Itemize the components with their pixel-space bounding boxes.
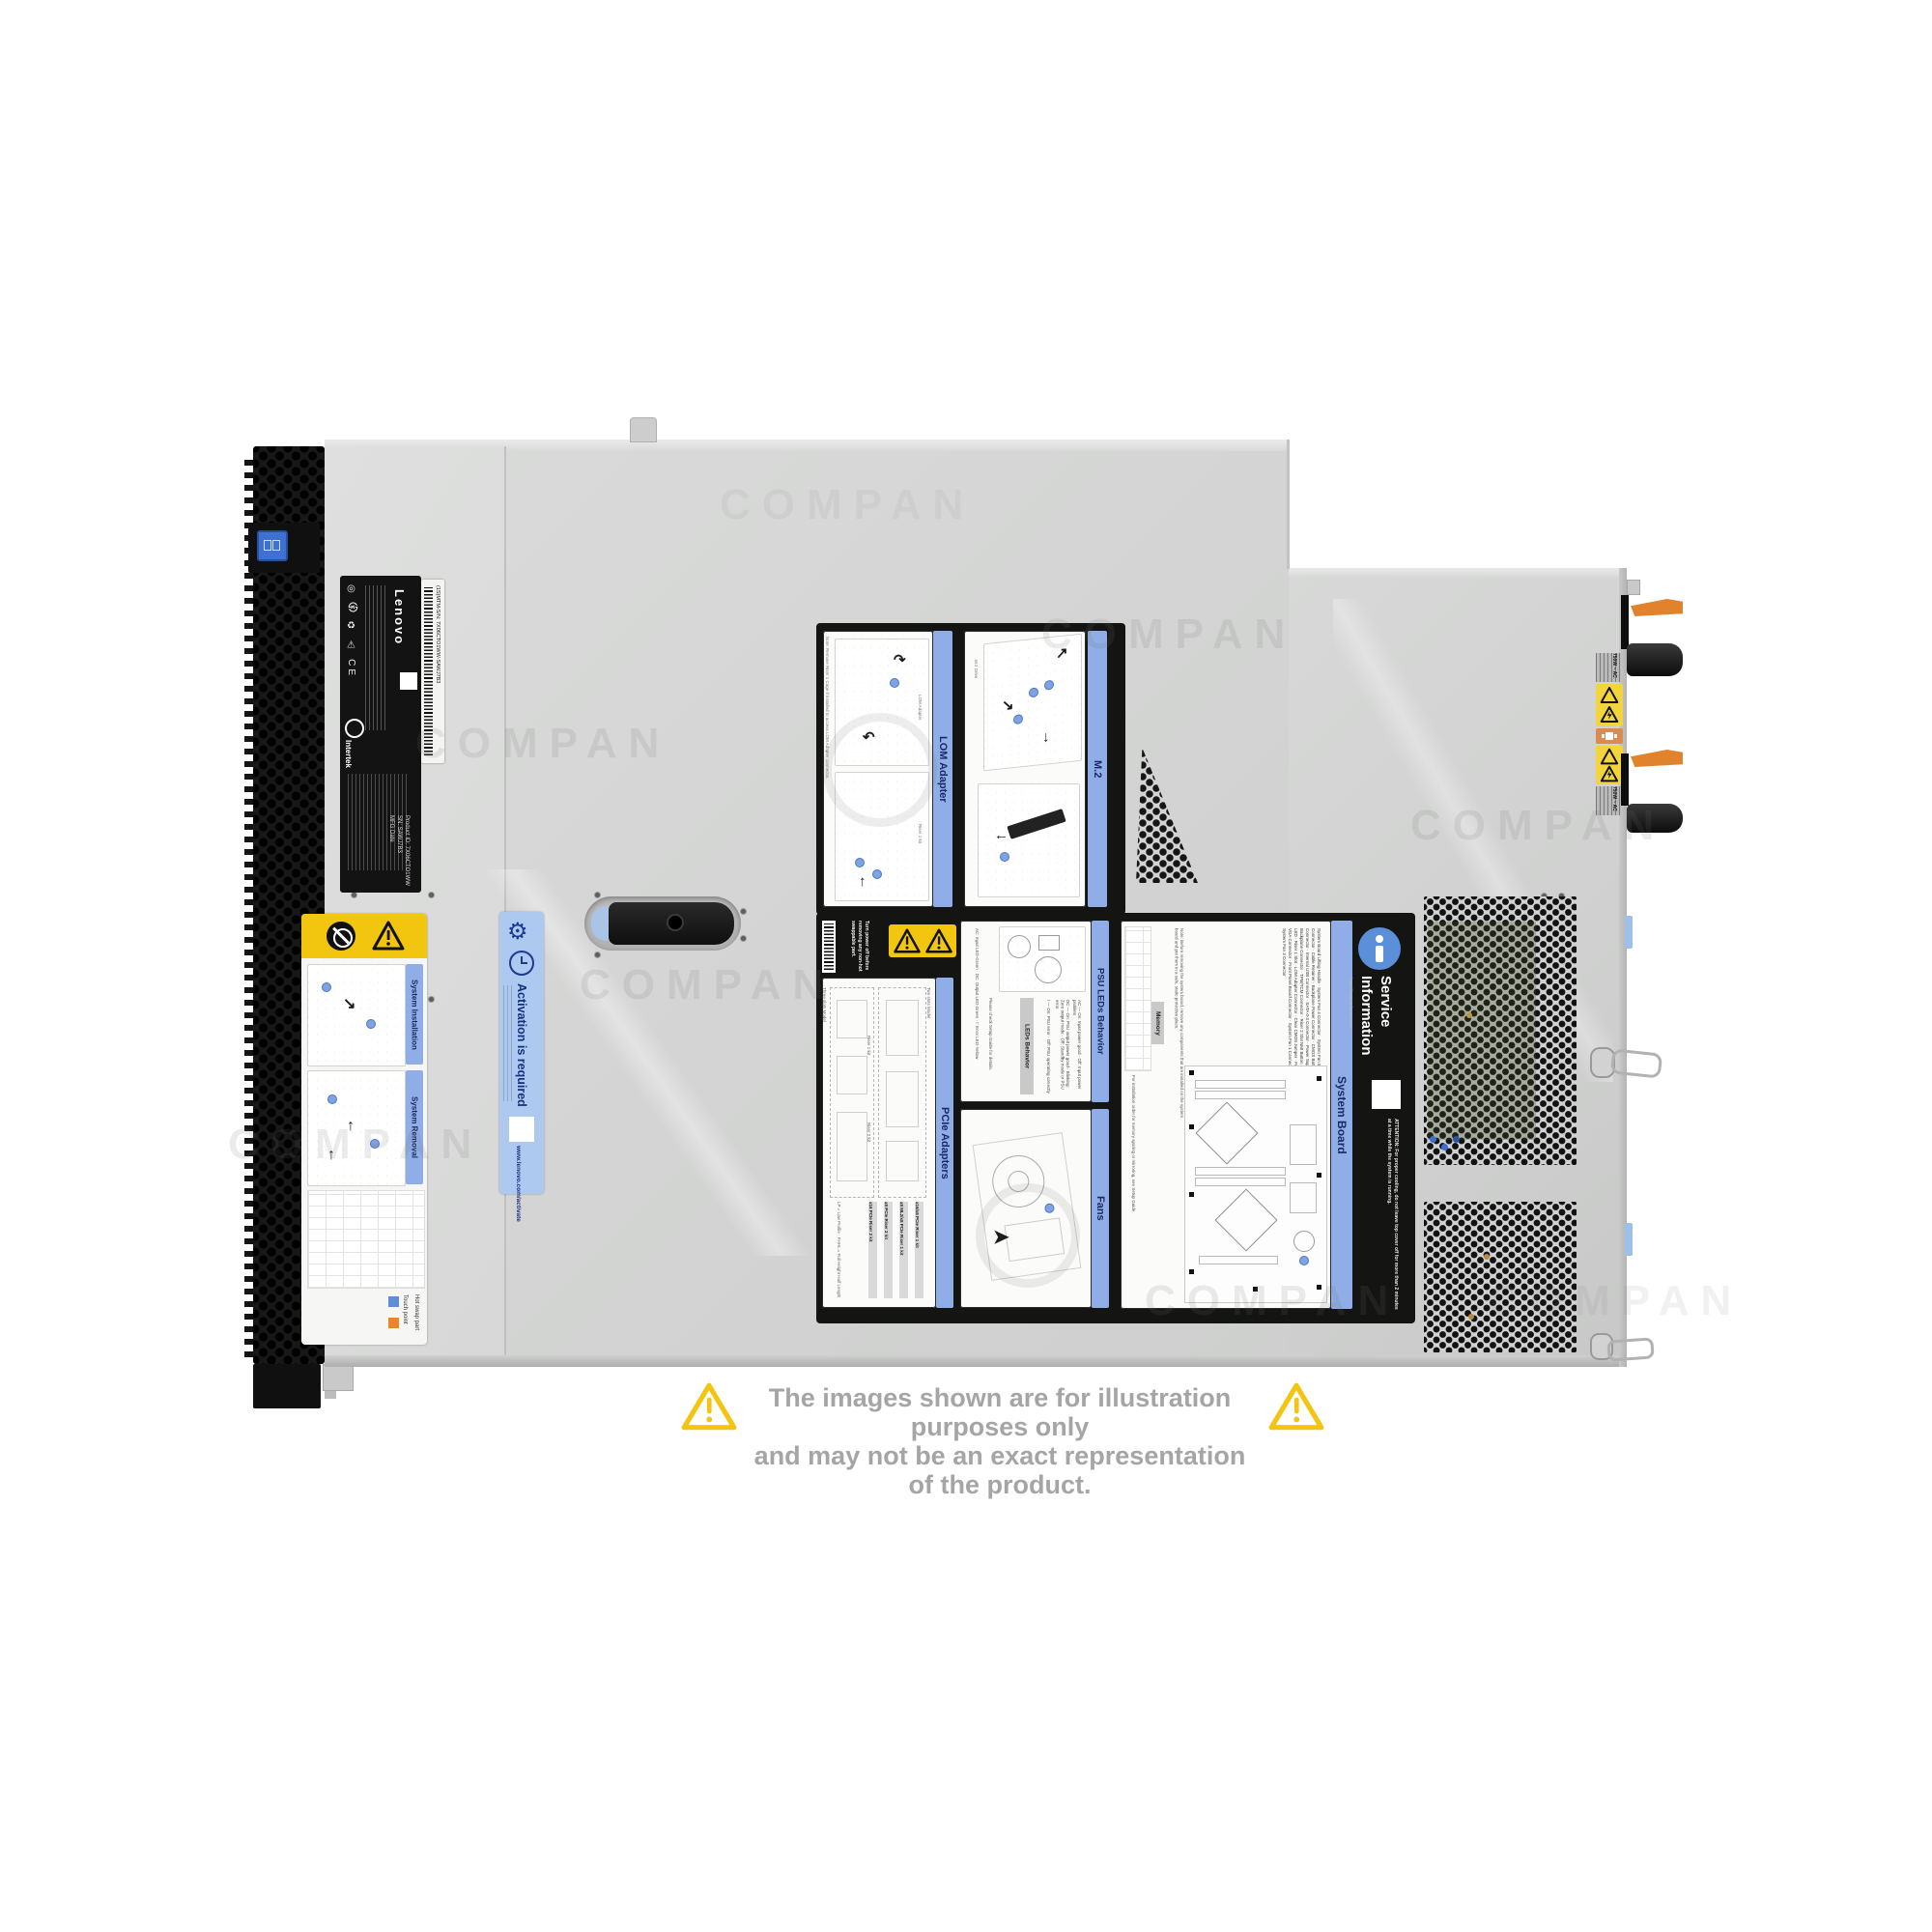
psu-row-ac: AC — On: Input power good · Off: Input p… — [1072, 1000, 1082, 1096]
activation-qr-icon — [509, 1117, 534, 1142]
fans-panel: ➤ — [960, 1109, 1092, 1308]
pcie-kit-bar: x16/x8 PCIe Riser 1 kit — [915, 1202, 923, 1298]
asset-label-mfg: MFG Date — [388, 815, 394, 842]
asset-label-certs: ◎ ㉿ ♻ ⚠ CE — [344, 583, 358, 678]
gear-icon: ⚙ — [507, 918, 528, 946]
m2-panel: Connector M.2 Drive Retainer ↗ ↘ ↓ ← — [964, 631, 1086, 907]
electric-hazard-icon — [1600, 705, 1619, 724]
asset-label-fineprint — [365, 585, 388, 730]
install-label-warning-strip — [301, 914, 427, 958]
pcie-kit-bar: x8 ML2/x8 PCIe Riser 1 kit — [899, 1202, 908, 1298]
cover-edge-top-rear — [1289, 568, 1625, 579]
mtm-barcode — [424, 587, 433, 755]
memory-table — [1124, 926, 1151, 1071]
psu-warning-label — [1596, 746, 1623, 784]
lom-diagram-1: ↷ ↶ — [835, 639, 929, 766]
pcie-kit2: x8 ML2/x8 PCIe Riser 1 kit — [899, 1202, 904, 1256]
psu1-release-tab[interactable] — [1631, 599, 1683, 616]
mtm-barcode-label: (1S)MTM-S/N: 7X06CTO1WW-SAWJ7B3 — [421, 580, 444, 763]
leds-behavior-bar: LEDs Behavior — [1020, 998, 1034, 1094]
fans-title: Fans — [1094, 1196, 1106, 1221]
rail-nub-top — [1627, 580, 1640, 595]
top-tab — [630, 417, 657, 442]
install-section1-header: System Installation — [406, 964, 423, 1065]
touch-point-swatch — [388, 1296, 399, 1307]
psu2-rating-label: 750W ~ AC — [1596, 786, 1621, 815]
install-diagram-1: ↘ — [307, 964, 406, 1066]
memory-title: Memory — [1154, 1011, 1161, 1036]
board-note: Note: Before removing the system board, … — [1171, 928, 1184, 1122]
memory-note: For installation order for memory sparin… — [1124, 1075, 1136, 1259]
m2-header: M.2 — [1088, 631, 1107, 907]
rear-vent-upper — [1424, 896, 1577, 1165]
screw — [741, 909, 746, 914]
psu1-rating: 750W ~ AC — [1611, 653, 1617, 678]
screw — [595, 952, 600, 957]
psu-leds-note: Please check Setup Guide for details. — [983, 998, 993, 1094]
psu2-rating: 750W ~ AC — [1611, 786, 1617, 811]
m2-diagram-2: ← — [978, 783, 1080, 897]
mtm-barcode-text: (1S)MTM-S/N: 7X06CTO1WW-SAWJ7B3 — [435, 585, 440, 683]
pcb-tint — [1428, 922, 1536, 1140]
rack-ear-bottom — [253, 1364, 321, 1408]
riser-sketch-2 — [878, 987, 926, 1198]
disclaimer-line2: and may not be an exact representation o… — [749, 1441, 1251, 1499]
system-board-title: System Board — [1335, 1076, 1349, 1154]
service-warning-text: Turn power off before removing any non-h… — [842, 921, 869, 980]
activation-url: www.lenovo.com/activate — [515, 1146, 522, 1222]
warning-triangle-icon — [893, 927, 922, 954]
psu-diagram — [999, 926, 1086, 992]
board-diagram — [1184, 1065, 1327, 1303]
install-label: ↘ System Installation ↑ ↑ System Removal… — [301, 914, 427, 1345]
latch-wire-handle[interactable] — [1606, 1337, 1654, 1361]
asset-label-qr-icon — [400, 672, 417, 690]
screw — [429, 893, 434, 897]
pcie-panel: Two slots Model Three slots Model Riser … — [822, 978, 936, 1308]
psu-leds-title: PSU LEDs Behavior — [1095, 968, 1106, 1055]
system-board-panel: Memory For installation order for memory… — [1121, 921, 1331, 1309]
install-section2-header: System Removal — [406, 1070, 423, 1184]
psu-leds-legend: AC: Input LED-Green · DC: Output LED-Gre… — [966, 928, 980, 1093]
screw — [741, 936, 746, 941]
service-info-icon — [1358, 927, 1401, 970]
lom-title: LOM Adapter — [937, 736, 949, 803]
install-led-table — [307, 1190, 425, 1289]
memory-bar: Memory — [1151, 1002, 1164, 1044]
screw — [352, 893, 356, 897]
activation-title: Activation is required — [515, 983, 528, 1107]
asset-label-intertek: Intertek — [344, 740, 353, 768]
lom-caption1: LOM Adapter — [918, 695, 923, 721]
warning-triangle-icon — [371, 920, 406, 952]
intertek-logo-icon — [345, 719, 364, 738]
pcie-model1: Two slots Model — [926, 987, 931, 1018]
riser-sketch-1 — [830, 987, 874, 1198]
psu1-slot — [1621, 595, 1629, 649]
service-barcode — [822, 921, 836, 973]
disclaimer-line1: The images shown are for illustration pu… — [749, 1383, 1251, 1441]
psu-leds-panel: AC: Input LED-Green · DC: Output LED-Gre… — [960, 921, 1092, 1102]
psu-row-err: ! — On: PSU error · Off: PSU operating c… — [1039, 1000, 1051, 1096]
psu2-slot — [1621, 753, 1629, 806]
m2-cap2: M.2 Drive — [974, 660, 979, 678]
service-info-url: https://support.lenovo.com — [1349, 978, 1353, 1029]
psu1-rating-label: 750W ~ AC — [1596, 653, 1621, 682]
front-port-icon — [257, 530, 288, 561]
asset-label-sn: SN: SAWJ7B3 — [396, 815, 402, 853]
fan-sketch — [973, 1132, 1082, 1281]
disclaimer-warning-icon — [680, 1379, 738, 1434]
pcie-kit-bar: x8 PCIe Riser 2 kit — [884, 1202, 893, 1298]
service-warning-label — [889, 924, 956, 957]
cover-latch-handle[interactable] — [609, 902, 734, 945]
hot-swap-label: Hot swap part — [413, 1294, 419, 1330]
pcie-model2: Three slots Model — [822, 987, 827, 1022]
latch-screw — [668, 916, 682, 929]
leds-behavior-title: LEDs Behavior — [1024, 1024, 1031, 1068]
pcie-kit1: x16/x8 PCIe Riser 1 kit — [915, 1202, 920, 1248]
screw — [595, 893, 600, 897]
lom-panel: Note: Remove Riser 1 Cage if installed t… — [823, 631, 933, 907]
install-legend: Touch point Hot swap part — [307, 1293, 423, 1339]
psu-plug-label — [1596, 728, 1623, 744]
psu2-release-tab[interactable] — [1631, 750, 1683, 767]
latch-wire-handle[interactable] — [1610, 1048, 1662, 1078]
psu-warning-label — [1596, 684, 1623, 726]
pcie-title: PCIe Adapters — [939, 1107, 951, 1179]
fan-arrow: ➤ — [993, 1225, 1009, 1249]
lom-diagram-2: ↑ — [835, 772, 929, 901]
pcie-kit4: x16 PCIe Riser 2 kit — [868, 1202, 873, 1242]
asset-label-product: Product ID: 7X06CTO1WW — [404, 815, 410, 886]
install-section1-label: System Installation — [411, 980, 419, 1050]
pcie-riser1: Riser 1 kit — [867, 1036, 871, 1055]
asset-label: Lenovo ◎ ㉿ ♻ ⚠ CE Intertek SN: SAWJ7B3 P… — [340, 576, 421, 893]
psu2-handle[interactable] — [1627, 804, 1683, 833]
hot-swap-swatch — [388, 1318, 399, 1328]
disclaimer-warning-icon — [1267, 1379, 1325, 1434]
m2-diagram-1: ↗ ↘ ↓ — [983, 634, 1082, 772]
pcie-kit-bar: x16 PCIe Riser 2 kit — [868, 1202, 877, 1298]
touch-point-label: Touch point — [402, 1294, 408, 1324]
cover-step-seam — [1287, 440, 1290, 569]
asset-label-brand: Lenovo — [392, 589, 407, 645]
rail-peg — [325, 1391, 336, 1399]
activation-label: ⚙ Activation is required www.lenovo.com/… — [499, 912, 544, 1194]
cover-edge-bottom — [325, 1355, 1625, 1367]
hot-surface-icon — [1600, 748, 1619, 765]
blue-touch-tab — [1625, 916, 1633, 949]
fans-header: Fans — [1092, 1109, 1109, 1308]
rear-vent-lower — [1424, 1202, 1577, 1352]
rail-tab-bottom — [323, 1364, 354, 1391]
pcie-riser2: Riser 2 kit — [867, 1122, 871, 1142]
blue-touch-tab — [1625, 1223, 1633, 1256]
m2-title: M.2 — [1092, 760, 1103, 778]
install-diagram-2: ↑ ↑ — [307, 1070, 406, 1186]
no-touch-icon — [327, 922, 355, 951]
pcie-kit3: x8 PCIe Riser 2 kit — [884, 1202, 889, 1239]
service-attention: ATTENTION: For proper cooling, do not le… — [1360, 1119, 1399, 1312]
psu-leds-header: PSU LEDs Behavior — [1092, 921, 1109, 1102]
product-photo: Lenovo ◎ ㉿ ♻ ⚠ CE Intertek SN: SAWJ7B3 P… — [0, 0, 1932, 1932]
clock-icon — [509, 951, 534, 976]
lom-caption2: Riser 1 kit — [918, 824, 923, 843]
psu-row-dc: DC — On: PSU output power good · Blinkin… — [1053, 1000, 1070, 1096]
pcie-header: PCIe Adapters — [936, 978, 953, 1308]
bezel-teeth — [244, 459, 253, 1357]
disclaimer: The images shown are for illustration pu… — [749, 1383, 1251, 1499]
warning-triangle-icon — [924, 927, 953, 954]
lom-header: LOM Adapter — [933, 631, 952, 907]
activation-fineprint — [503, 985, 513, 1101]
screw — [429, 997, 434, 1002]
service-info-qr-icon — [1372, 1080, 1401, 1109]
lom-note: Note: Remove Riser 1 Cage if installed t… — [825, 637, 830, 901]
pcie-abbr: LP = Low Profile · FHHL = Full Height Ha… — [830, 1202, 841, 1302]
psu1-handle[interactable] — [1627, 643, 1683, 676]
electric-hazard-icon — [1600, 765, 1619, 782]
hot-surface-icon — [1600, 686, 1619, 704]
install-section2-label: System Removal — [411, 1096, 419, 1158]
